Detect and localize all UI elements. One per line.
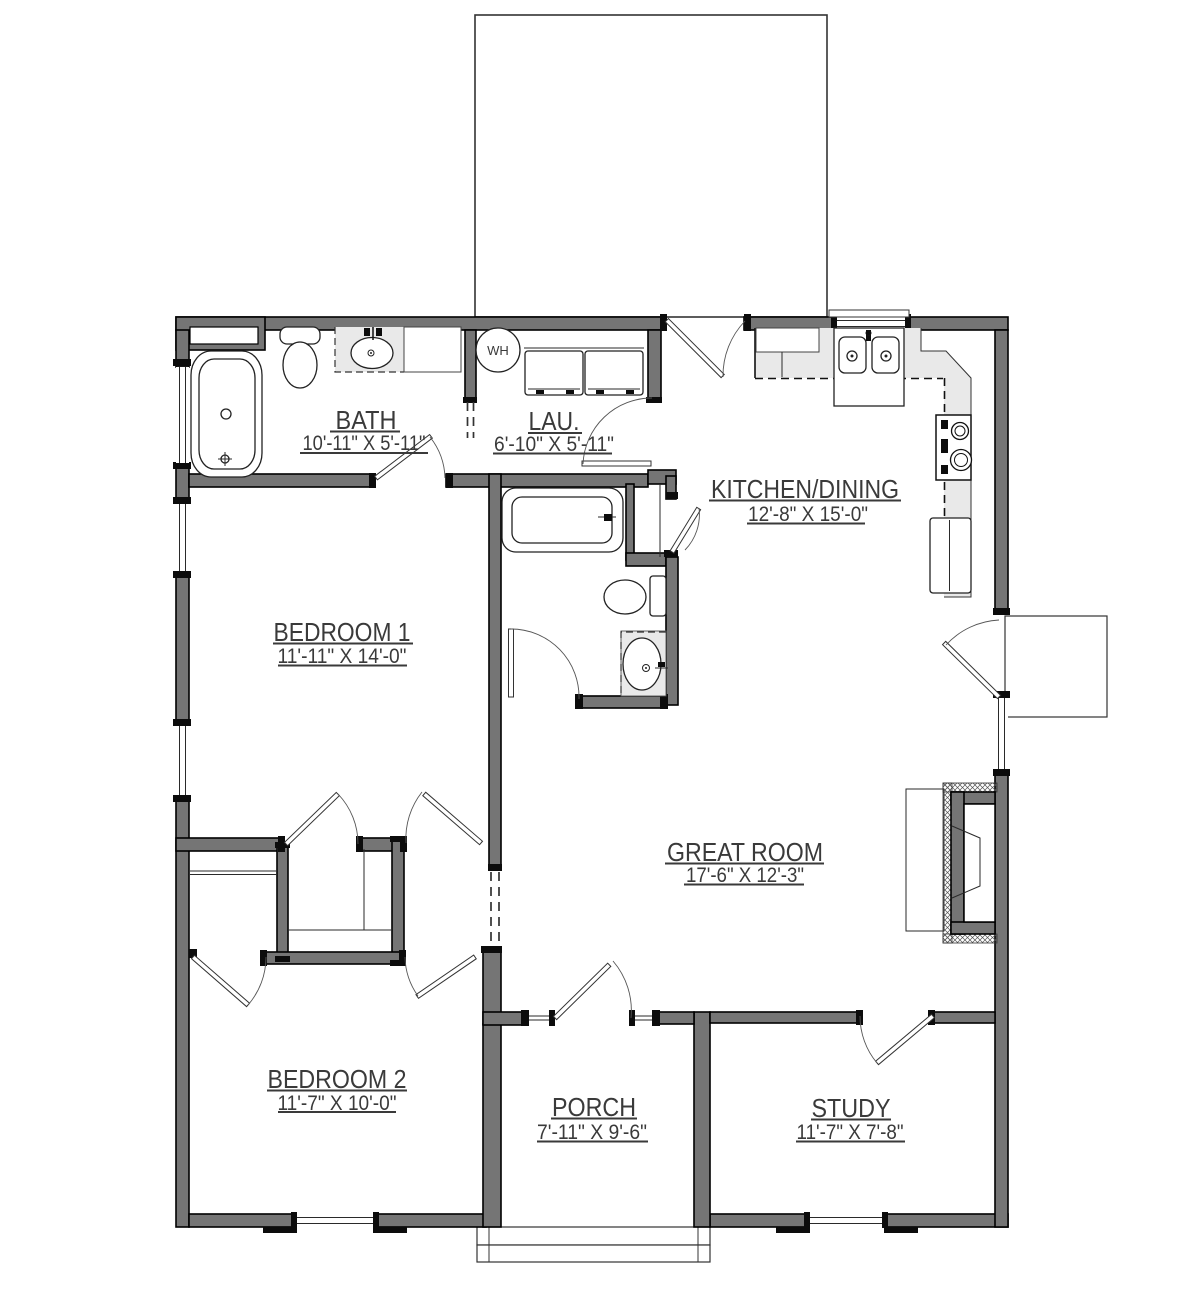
svg-text:WH: WH — [487, 343, 509, 358]
svg-text:10'-11" X 5'-11": 10'-11" X 5'-11" — [303, 432, 426, 455]
svg-text:LAU.: LAU. — [529, 406, 580, 436]
